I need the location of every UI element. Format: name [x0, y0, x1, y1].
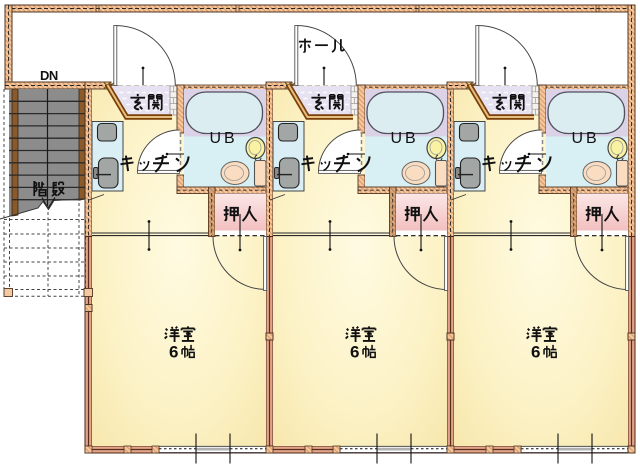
svg-text:DN: DN	[40, 68, 58, 83]
